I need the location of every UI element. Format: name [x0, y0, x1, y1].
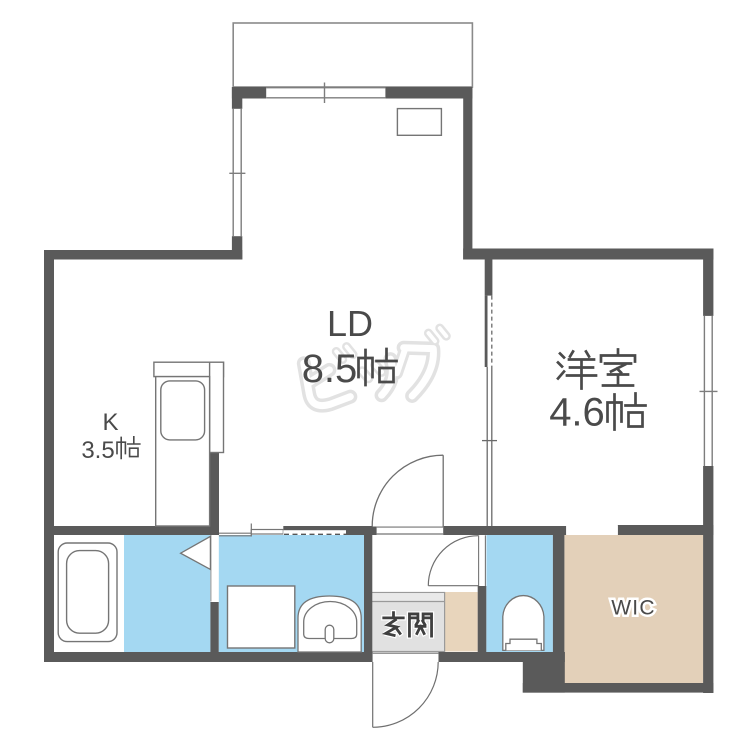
- svg-text:8.5: 8.5: [302, 347, 358, 391]
- svg-text:WIC: WIC: [611, 597, 655, 620]
- svg-text:4.6: 4.6: [549, 391, 605, 435]
- svg-text:LD: LD: [327, 303, 373, 344]
- svg-text:K: K: [102, 409, 118, 436]
- svg-text:3.5: 3.5: [81, 437, 114, 464]
